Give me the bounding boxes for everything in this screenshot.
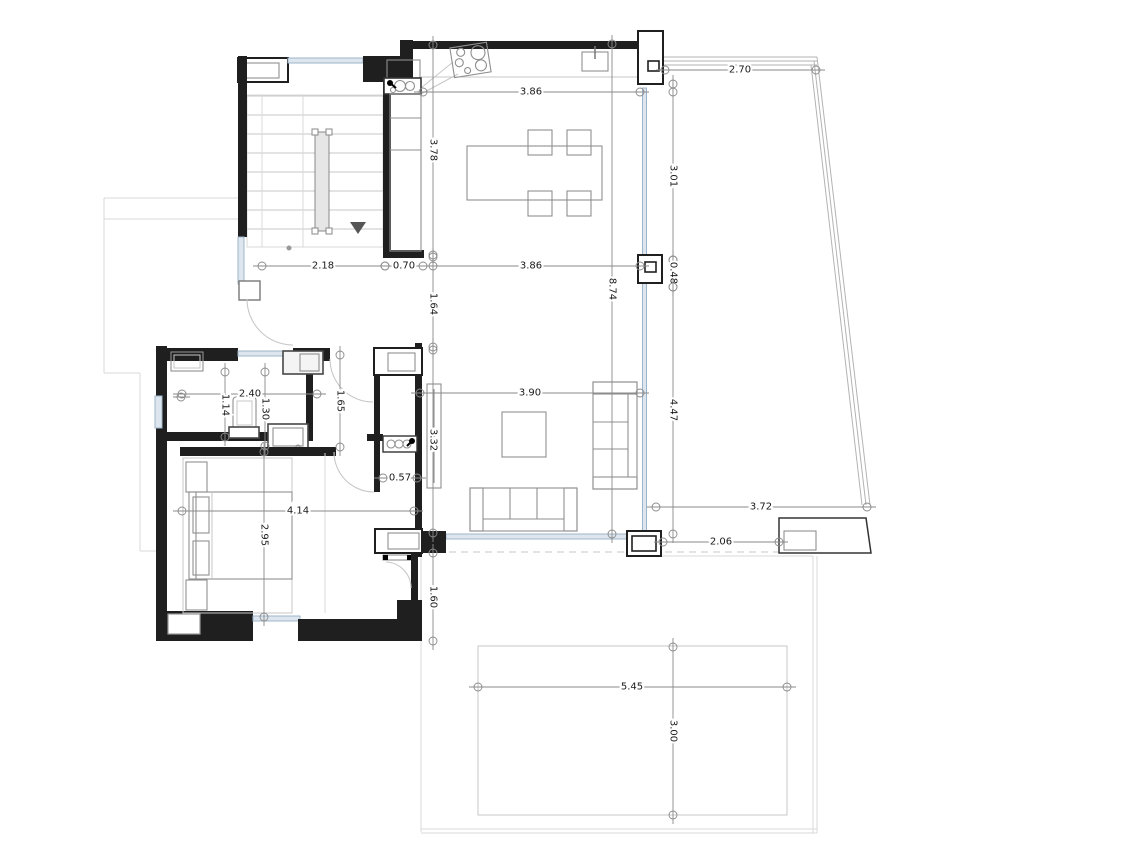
svg-text:3.86: 3.86	[520, 87, 542, 98]
nightstand	[186, 462, 207, 492]
sofa-east	[593, 382, 637, 489]
door-closet	[386, 562, 411, 588]
dimension-hall-width: 2.18	[253, 261, 394, 272]
column-southeast	[627, 531, 661, 556]
dimension-dining-width-north: 3.86	[414, 87, 649, 98]
dimension-bathroom-width: 2.40	[173, 389, 326, 400]
dimension-living-width: 3.90	[411, 388, 649, 399]
south-terrace	[421, 552, 817, 833]
dining-north-wall	[408, 41, 641, 49]
svg-text:3.01: 3.01	[668, 165, 679, 187]
pier-east-middle	[638, 255, 662, 283]
wc-sink	[383, 436, 417, 452]
svg-text:0.70: 0.70	[393, 261, 415, 272]
kitchen-hood	[582, 46, 608, 71]
svg-text:3.32: 3.32	[428, 429, 439, 451]
washing-machine	[268, 424, 308, 450]
terrace-planter	[779, 518, 871, 553]
bed	[189, 492, 292, 579]
pillow	[193, 541, 209, 575]
wc-strip	[367, 348, 422, 641]
chair	[528, 191, 552, 216]
dimension-kitchen-run: 3.78	[428, 36, 439, 264]
dimension-bedroom-terrace-offset: 1.60	[428, 544, 439, 650]
dimension-patio-depth: 3.00	[668, 638, 679, 824]
wall-niche	[168, 614, 200, 634]
bedroom-north-wall	[180, 447, 336, 456]
east-facade	[638, 31, 663, 533]
svg-text:0.57: 0.57	[389, 473, 411, 484]
floor-plan-canvas: 2.70 3.86 3.78 3.01 2.18 0.70 3.86 0.48 …	[0, 0, 1143, 850]
svg-text:1.60: 1.60	[428, 586, 439, 608]
stair-railing	[315, 132, 329, 231]
dimension-main-depth: 8.74	[607, 35, 618, 543]
patio-lawn	[478, 646, 787, 815]
sofa-south	[470, 488, 577, 531]
svg-text:2.40: 2.40	[239, 389, 261, 400]
svg-text:3.72: 3.72	[750, 502, 772, 513]
glazing-south	[446, 534, 627, 539]
svg-text:3.00: 3.00	[668, 720, 679, 742]
chair	[567, 130, 591, 155]
svg-text:4.14: 4.14	[287, 506, 309, 517]
pier-northeast	[638, 31, 663, 84]
svg-text:1.64: 1.64	[428, 293, 439, 315]
svg-text:8.74: 8.74	[607, 278, 618, 300]
dimension-terrace-east-upper: 3.01	[668, 83, 679, 269]
stair-direction-arrow-icon	[350, 222, 366, 234]
toilet	[229, 397, 259, 438]
walls-north	[238, 40, 641, 300]
dimension-terrace-north-width: 2.70	[656, 65, 825, 76]
svg-text:2.18: 2.18	[312, 261, 334, 272]
kitchen	[384, 42, 638, 251]
closet-south	[375, 529, 422, 553]
dimension-living-depth: 3.32	[428, 338, 439, 542]
dimension-corridor: 1.65	[335, 346, 346, 456]
svg-text:1.65: 1.65	[335, 390, 346, 412]
svg-text:1.30: 1.30	[260, 398, 271, 420]
bath-cabinet	[171, 352, 203, 371]
window-north	[288, 58, 363, 63]
wardrobe	[283, 351, 323, 374]
wc-west-wall	[374, 375, 380, 492]
door-hall	[247, 299, 293, 345]
stair-west-wall	[238, 56, 247, 237]
dining-room	[467, 130, 602, 216]
chair	[528, 130, 552, 155]
living-room	[415, 343, 661, 557]
dimension-kitchen-counter: 0.70	[376, 261, 432, 272]
svg-text:2.06: 2.06	[710, 537, 732, 548]
svg-text:3.78: 3.78	[428, 139, 439, 161]
svg-text:1.14: 1.14	[220, 394, 231, 416]
door-pillar	[239, 281, 260, 300]
svg-text:2.70: 2.70	[729, 65, 751, 76]
dimension-terrace-south-width: 3.72	[647, 502, 876, 513]
closet-north	[374, 348, 422, 375]
adjacent-structure-outline	[104, 198, 238, 551]
terrace-railing	[663, 57, 870, 505]
dimension-patio-width: 5.45	[469, 682, 796, 693]
chair	[567, 191, 591, 216]
window-stair-west	[238, 237, 244, 284]
floor-plan-page: 2.70 3.86 3.78 3.01 2.18 0.70 3.86 0.48 …	[0, 0, 1143, 850]
window-bath-west	[155, 396, 162, 428]
dimension-dining-width-south: 3.86	[424, 261, 649, 272]
dimension-terrace-east-lower: 4.47	[668, 278, 679, 543]
svg-text:5.45: 5.45	[621, 682, 643, 693]
column-southwest	[421, 531, 446, 553]
towel-rail	[383, 555, 412, 560]
pillow	[193, 497, 209, 533]
dining-table	[467, 146, 602, 200]
svg-text:3.86: 3.86	[520, 261, 542, 272]
bed-platform	[183, 458, 292, 613]
glazing-east	[643, 88, 647, 533]
svg-text:4.47: 4.47	[668, 399, 679, 421]
dimension-bedroom-width: 4.14	[173, 506, 423, 517]
svg-text:2.95: 2.95	[259, 524, 270, 546]
bedroom-west-wall	[156, 440, 167, 614]
dimension-bedroom-depth: 2.95	[259, 443, 270, 626]
coffee-table	[502, 412, 546, 457]
staircase	[247, 95, 383, 251]
svg-text:3.90: 3.90	[519, 388, 541, 399]
dimension-wc-width: 0.57	[374, 473, 426, 484]
door-bedroom	[334, 452, 374, 492]
nightstand	[186, 580, 207, 610]
